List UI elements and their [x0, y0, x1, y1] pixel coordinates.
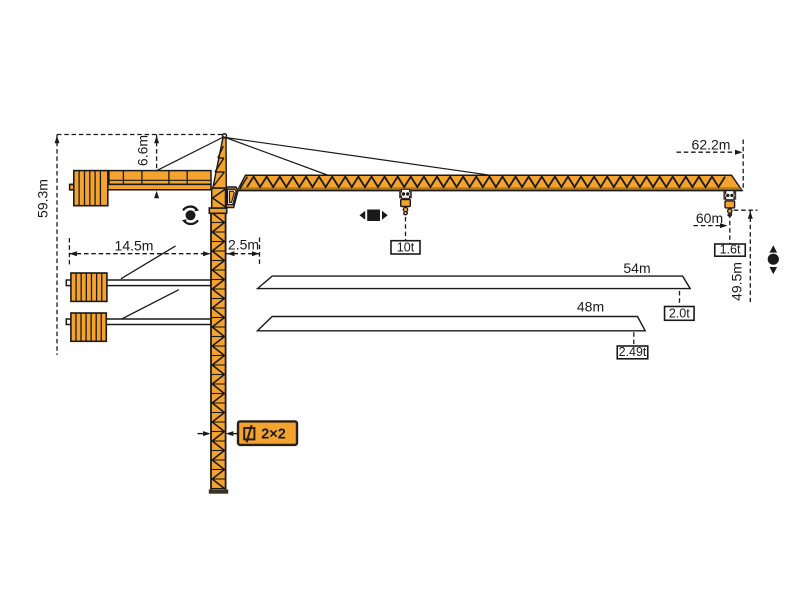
svg-text:60m: 60m	[696, 210, 723, 226]
svg-text:6.6m: 6.6m	[135, 135, 151, 166]
svg-text:2.49t: 2.49t	[619, 345, 647, 359]
svg-text:2.0t: 2.0t	[669, 307, 690, 321]
svg-text:59.3m: 59.3m	[35, 179, 51, 218]
svg-text:54m: 54m	[623, 260, 650, 276]
svg-text:2×2: 2×2	[261, 427, 286, 443]
svg-text:1.6t: 1.6t	[720, 243, 741, 257]
svg-text:14.5m: 14.5m	[115, 238, 154, 254]
svg-text:48m: 48m	[577, 299, 604, 315]
svg-text:10t: 10t	[397, 240, 415, 254]
svg-text:62.2m: 62.2m	[692, 137, 731, 153]
svg-text:2.5m: 2.5m	[228, 237, 259, 253]
svg-text:49.5m: 49.5m	[729, 262, 745, 301]
